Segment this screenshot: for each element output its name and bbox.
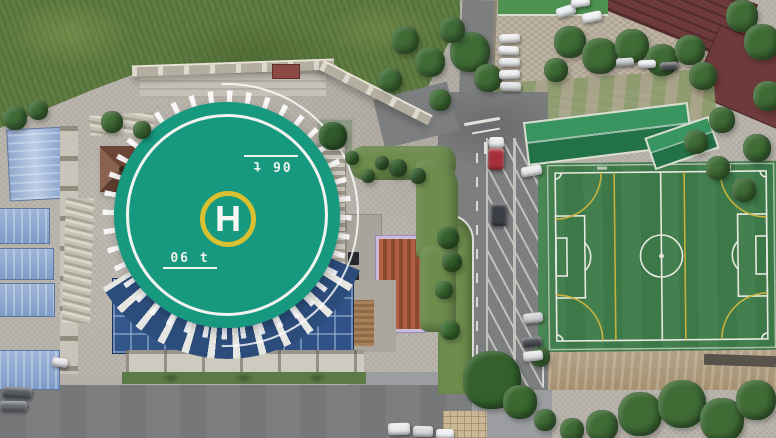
car [523,350,544,362]
car [413,426,433,437]
car [498,46,519,56]
car [388,423,410,436]
car [570,0,590,8]
car [499,33,520,43]
car [520,164,542,177]
car [51,357,68,368]
car [660,62,678,71]
car [522,336,543,348]
car [489,137,504,148]
car [523,312,544,324]
car [499,70,520,80]
car [0,401,27,411]
car [436,429,454,438]
car [488,148,505,171]
car [638,60,656,69]
car [500,82,521,91]
car [2,386,33,399]
car [499,58,520,67]
car [616,57,635,66]
car [581,10,603,24]
vehicles-layer [0,0,776,438]
aerial-photo: H 06 t 06 t [0,0,776,438]
car [491,203,507,226]
